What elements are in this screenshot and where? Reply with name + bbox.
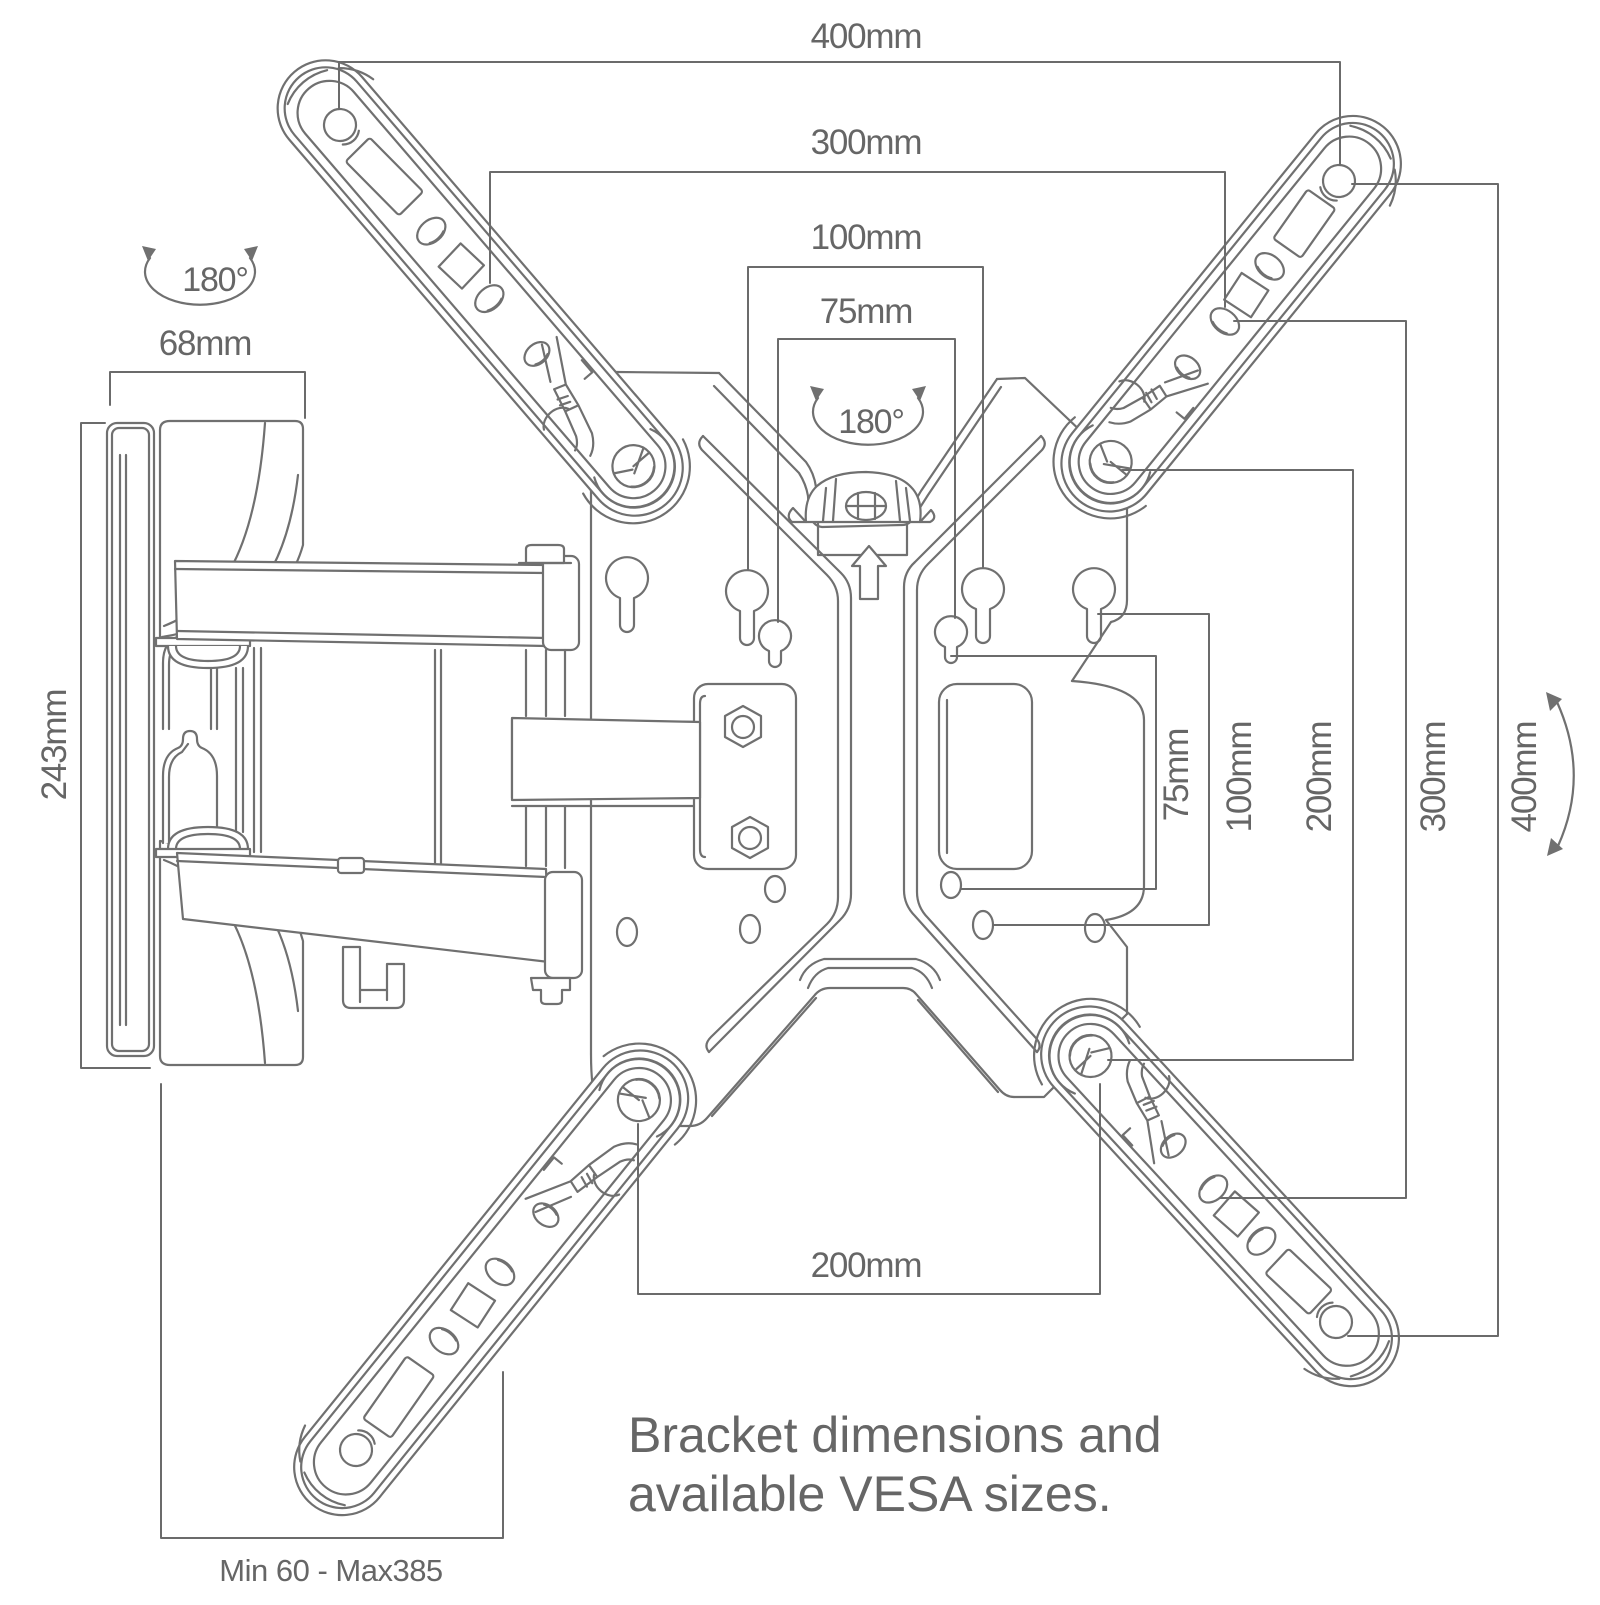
- svg-text:400mm: 400mm: [811, 17, 922, 56]
- svg-text:300mm: 300mm: [1414, 722, 1453, 833]
- svg-text:200mm: 200mm: [811, 1246, 922, 1285]
- svg-text:68mm: 68mm: [159, 324, 251, 363]
- svg-text:180°: 180°: [182, 261, 248, 299]
- svg-text:100mm: 100mm: [811, 218, 922, 257]
- svg-text:200mm: 200mm: [1300, 722, 1339, 833]
- svg-text:Bracket dimensions and: Bracket dimensions and: [628, 1407, 1162, 1463]
- svg-text:300mm: 300mm: [811, 123, 922, 162]
- svg-text:400mm: 400mm: [1505, 722, 1544, 833]
- svg-text:75mm: 75mm: [820, 292, 912, 331]
- svg-text:75mm: 75mm: [1157, 729, 1196, 821]
- svg-text:Min 60 - Max385: Min 60 - Max385: [219, 1553, 442, 1588]
- svg-text:available VESA sizes.: available VESA sizes.: [628, 1466, 1112, 1522]
- svg-text:100mm: 100mm: [1220, 722, 1259, 833]
- svg-text:243mm: 243mm: [35, 690, 74, 801]
- svg-text:180°: 180°: [838, 403, 904, 441]
